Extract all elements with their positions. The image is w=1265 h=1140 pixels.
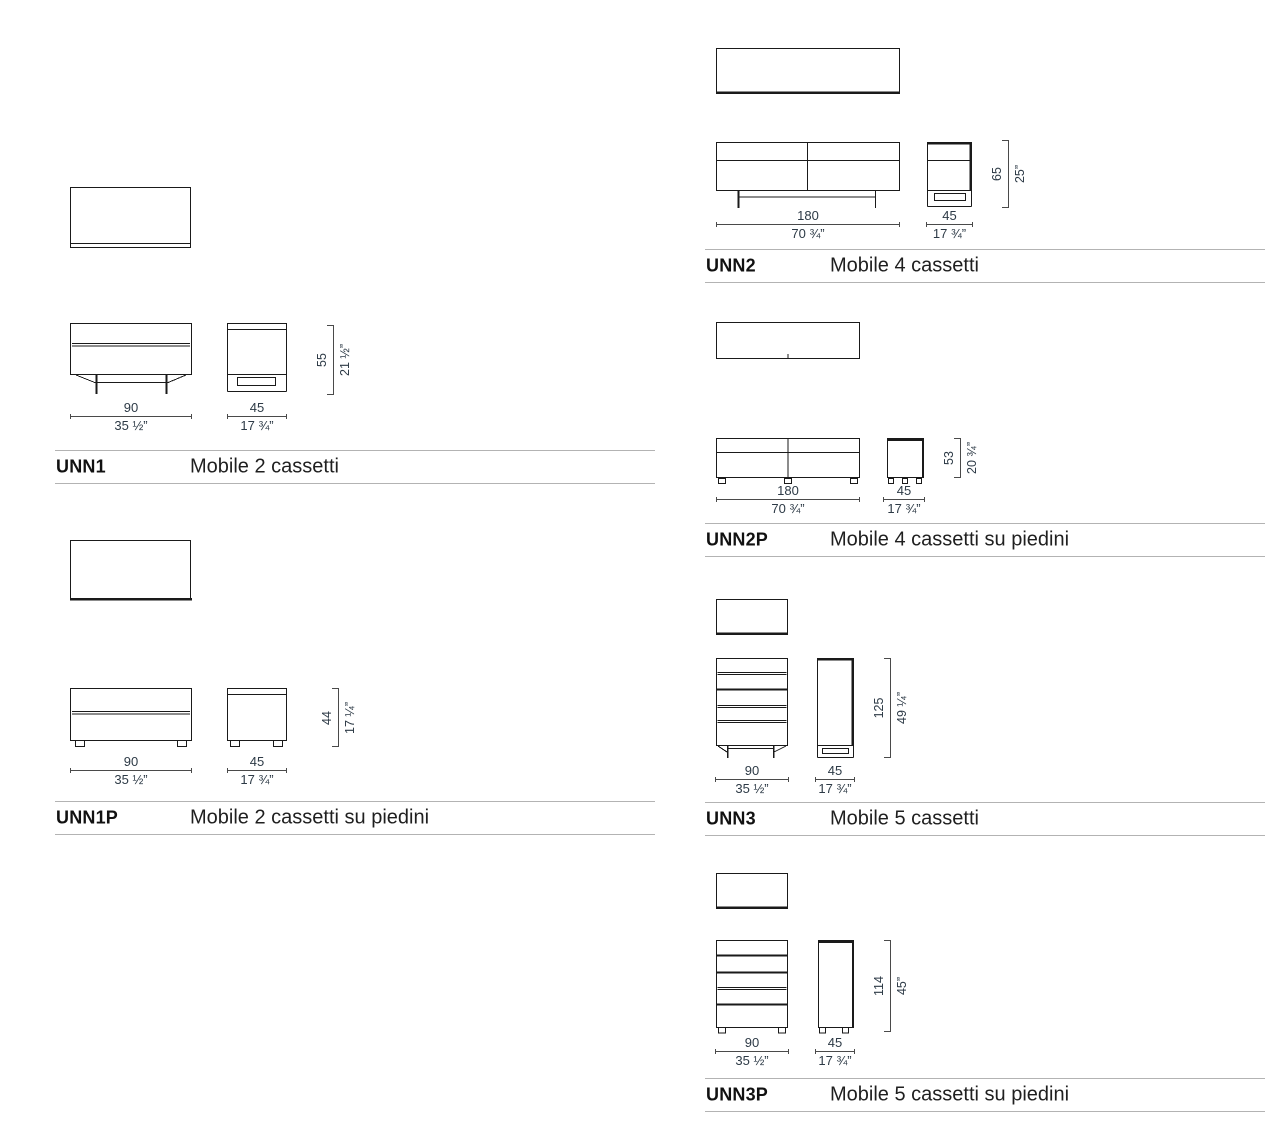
unn1p-height-dimension: 44 17 ¼” <box>314 688 362 747</box>
dimension-line <box>70 770 192 771</box>
unn3p-width-cm: 90 <box>715 1036 789 1050</box>
unn3-front-view-drawing <box>714 656 790 760</box>
dimension-line <box>815 779 855 780</box>
unn2p-height-cm: 53 <box>942 451 956 465</box>
unn1-top-view-drawing <box>70 185 192 249</box>
unn2-width-inches: 70 ¾” <box>716 227 900 241</box>
unn2p-width-dimension: 180 70 ¾” <box>716 484 860 516</box>
unn3-width-cm: 90 <box>715 764 789 778</box>
unn3-depth-inches: 17 ¾” <box>815 782 855 796</box>
unn2-width-dimension: 180 70 ¾” <box>716 209 900 241</box>
unn1-width-dimension: 90 35 ½” <box>70 401 192 433</box>
unn3p-top-view-drawing <box>714 871 790 911</box>
dimension-line <box>1008 140 1009 208</box>
unn1-product-code: UNN1 <box>56 457 106 478</box>
unn2-product-name: Mobile 4 cassetti <box>830 255 979 278</box>
dimension-line <box>715 779 789 780</box>
unn2p-front-view-drawing <box>714 436 862 484</box>
unn2-product-code: UNN2 <box>706 256 756 277</box>
unn3p-side-view-drawing <box>816 938 858 1036</box>
unn1-depth-inches: 17 ¾” <box>227 419 287 433</box>
unn3-height-inches: 49 ¼” <box>895 692 909 724</box>
unn3p-width-dimension: 90 35 ½” <box>715 1036 789 1068</box>
unn3-top-view-drawing <box>714 597 790 638</box>
unn2p-label-row: UNN2P Mobile 4 cassetti su piedini <box>705 523 1265 557</box>
unn1p-width-inches: 35 ½” <box>70 773 192 787</box>
dimension-line <box>716 224 900 225</box>
unn3-height-cm: 125 <box>872 698 886 719</box>
unn1p-label-row: UNN1P Mobile 2 cassetti su piedini <box>55 801 655 835</box>
unn2-width-cm: 180 <box>716 209 900 223</box>
unn3p-product-code: UNN3P <box>706 1085 768 1106</box>
unn1p-product-code: UNN1P <box>56 808 118 829</box>
unn3-depth-dimension: 45 17 ¾” <box>815 764 855 796</box>
unn2-height-cm: 65 <box>990 167 1004 181</box>
unn1p-depth-dimension: 45 17 ¾” <box>227 755 287 787</box>
unn1p-front-view-drawing <box>68 686 194 750</box>
unn3p-depth-inches: 17 ¾” <box>815 1054 855 1068</box>
unn3p-front-view-drawing <box>714 938 790 1036</box>
dimension-line <box>338 688 339 747</box>
unn3-label-row: UNN3 Mobile 5 cassetti <box>705 802 1265 836</box>
catalog-page: 90 35 ½” 45 17 ¾” 55 21 ½” UNN1 Mobile 2… <box>0 0 1265 1140</box>
unn3p-width-inches: 35 ½” <box>715 1054 789 1068</box>
unn2p-width-cm: 180 <box>716 484 860 498</box>
unn3-depth-cm: 45 <box>815 764 855 778</box>
unn2p-height-dimension: 53 20 ¾” <box>936 438 984 478</box>
unn1p-depth-inches: 17 ¾” <box>227 773 287 787</box>
unn1-height-cm: 55 <box>315 353 329 367</box>
dimension-line <box>716 499 860 500</box>
dimension-line <box>715 1051 789 1052</box>
unn3p-height-cm: 114 <box>872 976 886 996</box>
dimension-line <box>883 499 925 500</box>
unn2p-product-name: Mobile 4 cassetti su piedini <box>830 529 1069 552</box>
unn2-label-row: UNN2 Mobile 4 cassetti <box>705 249 1265 283</box>
unn3-side-view-drawing <box>815 656 857 760</box>
dimension-line <box>890 658 891 758</box>
unn3-width-inches: 35 ½” <box>715 782 789 796</box>
unn2p-depth-cm: 45 <box>883 484 925 498</box>
unn2p-depth-inches: 17 ¾” <box>883 502 925 516</box>
unn1-product-name: Mobile 2 cassetti <box>190 456 339 479</box>
unn2p-product-code: UNN2P <box>706 530 768 551</box>
unn1p-depth-cm: 45 <box>227 755 287 769</box>
unn2p-depth-dimension: 45 17 ¾” <box>883 484 925 516</box>
unn2-side-view-drawing <box>925 140 975 210</box>
unn3-width-dimension: 90 35 ½” <box>715 764 789 796</box>
unn2p-side-view-drawing <box>885 436 927 484</box>
unn2p-height-inches: 20 ¾” <box>965 442 979 474</box>
unn1-width-cm: 90 <box>70 401 192 415</box>
unn1-width-inches: 35 ½” <box>70 419 192 433</box>
unn1p-height-cm: 44 <box>320 711 334 725</box>
unn2p-top-view-drawing <box>714 320 862 362</box>
unn1-depth-dimension: 45 17 ¾” <box>227 401 287 433</box>
dimension-line <box>70 416 192 417</box>
unn3p-depth-cm: 45 <box>815 1036 855 1050</box>
dimension-line <box>926 224 973 225</box>
dimension-line <box>960 438 961 478</box>
unn1p-width-cm: 90 <box>70 755 192 769</box>
unn1-height-inches: 21 ½” <box>338 344 352 376</box>
unn3p-depth-dimension: 45 17 ¾” <box>815 1036 855 1068</box>
unn2p-width-inches: 70 ¾” <box>716 502 860 516</box>
unn3-product-name: Mobile 5 cassetti <box>830 808 979 831</box>
unn1p-product-name: Mobile 2 cassetti su piedini <box>190 807 429 830</box>
unn3p-label-row: UNN3P Mobile 5 cassetti su piedini <box>705 1078 1265 1112</box>
dimension-line <box>890 940 891 1032</box>
unn1-height-dimension: 55 21 ½” <box>309 325 357 395</box>
unn2-height-inches: 25” <box>1013 165 1027 183</box>
dimension-line <box>815 1051 855 1052</box>
unn1-front-view-drawing <box>68 320 194 398</box>
unn2-depth-dimension: 45 17 ¾” <box>926 209 973 241</box>
unn2-front-view-drawing <box>714 140 902 210</box>
dimension-line <box>227 770 287 771</box>
unn3p-height-dimension: 114 45” <box>866 940 914 1032</box>
unn3-product-code: UNN3 <box>706 809 756 830</box>
unn1-side-view-drawing <box>225 320 289 398</box>
unn1p-top-view-drawing <box>70 538 192 602</box>
dimension-line <box>227 416 287 417</box>
unn2-depth-cm: 45 <box>926 209 973 223</box>
unn1-label-row: UNN1 Mobile 2 cassetti <box>55 450 655 484</box>
unn1p-side-view-drawing <box>225 686 289 750</box>
unn3p-product-name: Mobile 5 cassetti su piedini <box>830 1084 1069 1107</box>
unn3-height-dimension: 125 49 ¼” <box>866 658 914 758</box>
unn1-depth-cm: 45 <box>227 401 287 415</box>
unn3p-height-inches: 45” <box>895 977 909 995</box>
unn1p-width-dimension: 90 35 ½” <box>70 755 192 787</box>
unn2-top-view-drawing <box>714 46 902 96</box>
dimension-line <box>333 325 334 395</box>
unn2-depth-inches: 17 ¾” <box>926 227 973 241</box>
unn1p-height-inches: 17 ¼” <box>343 702 357 734</box>
unn2-height-dimension: 65 25” <box>984 140 1032 208</box>
